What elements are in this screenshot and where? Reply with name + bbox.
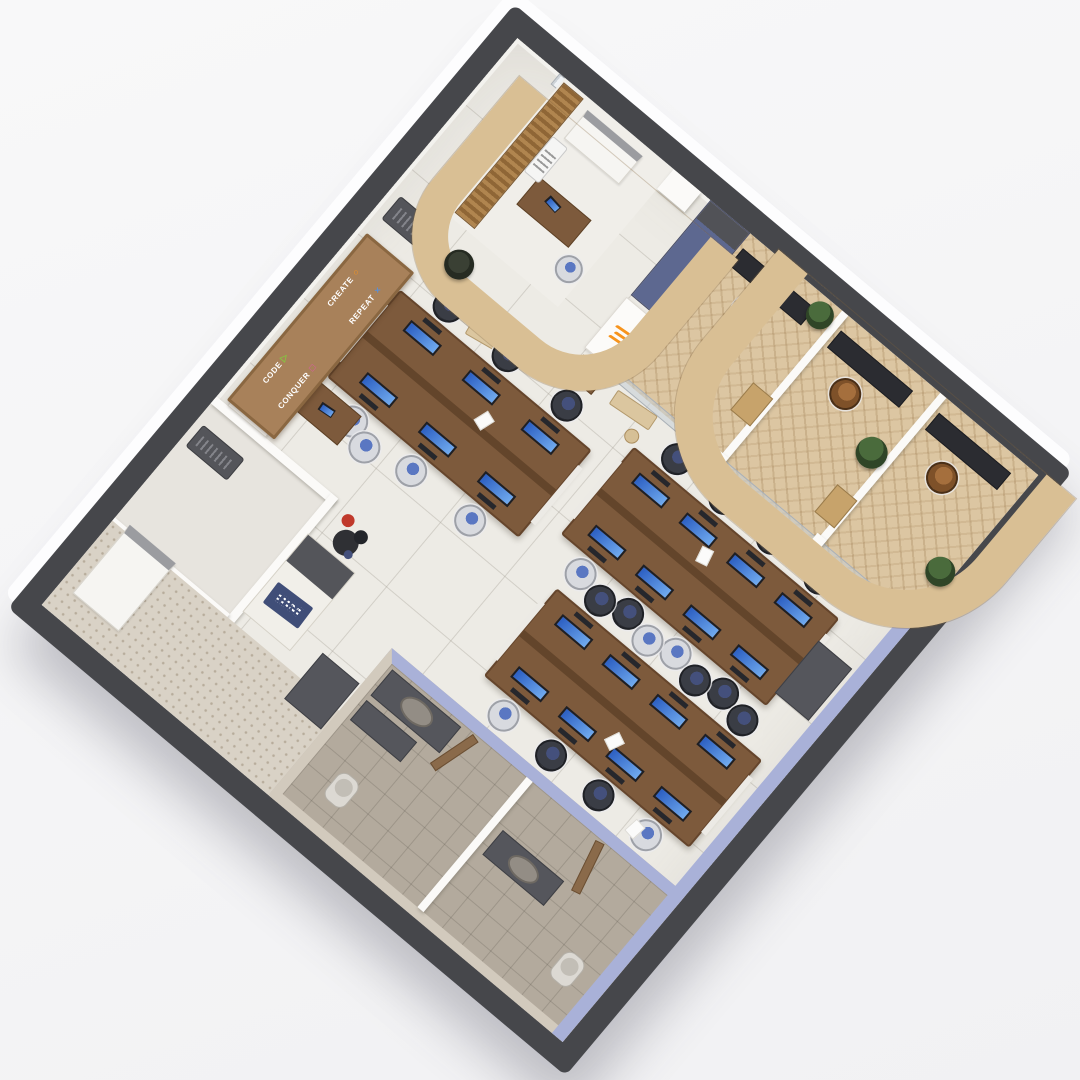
scene-background: ○ CREATE × REPEAT △ CODE □ CONQUER: [0, 0, 1080, 1080]
ibm-logo: IBM: [263, 582, 314, 629]
square-icon: □: [307, 363, 317, 373]
motto-label: CODE: [261, 359, 284, 384]
toilet: [321, 769, 363, 812]
ibm-logo-stripes: [266, 585, 310, 625]
sink-counter: [482, 830, 564, 906]
cross-icon: ×: [373, 285, 383, 295]
sink: [394, 691, 439, 734]
sink: [503, 849, 545, 889]
circle-icon: ○: [351, 267, 361, 277]
office-floorplan: ○ CREATE × REPEAT △ CODE □ CONQUER: [42, 38, 1039, 1042]
monitor: [318, 402, 336, 418]
toilet: [547, 948, 589, 991]
motto-label: REPEAT: [347, 292, 377, 325]
restroom-door: [571, 840, 605, 895]
